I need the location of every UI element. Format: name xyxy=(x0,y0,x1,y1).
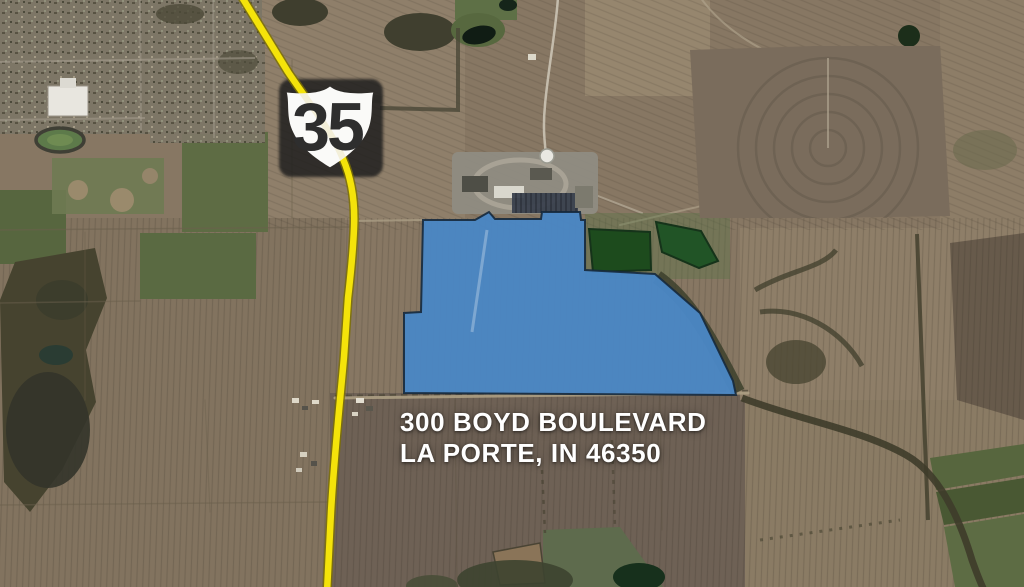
school-building xyxy=(48,86,88,116)
crop-circles-field xyxy=(690,42,950,238)
satellite-map[interactable]: 35 300 BOYD BOULEVARD LA PORTE, IN 46350 xyxy=(0,0,1024,587)
retention-pond-west xyxy=(589,229,651,272)
route-number: 35 xyxy=(292,89,363,165)
sports-fields xyxy=(52,158,164,214)
address-line2: LA PORTE, IN 46350 xyxy=(400,438,707,469)
address-label: 300 BOYD BOULEVARD LA PORTE, IN 46350 xyxy=(400,407,707,469)
address-line1: 300 BOYD BOULEVARD xyxy=(400,407,707,438)
satellite-map-canvas: 35 xyxy=(0,0,1024,587)
water-tank xyxy=(540,149,554,163)
industrial-facility xyxy=(452,149,598,214)
solar-array xyxy=(512,193,578,213)
running-track xyxy=(36,128,84,152)
